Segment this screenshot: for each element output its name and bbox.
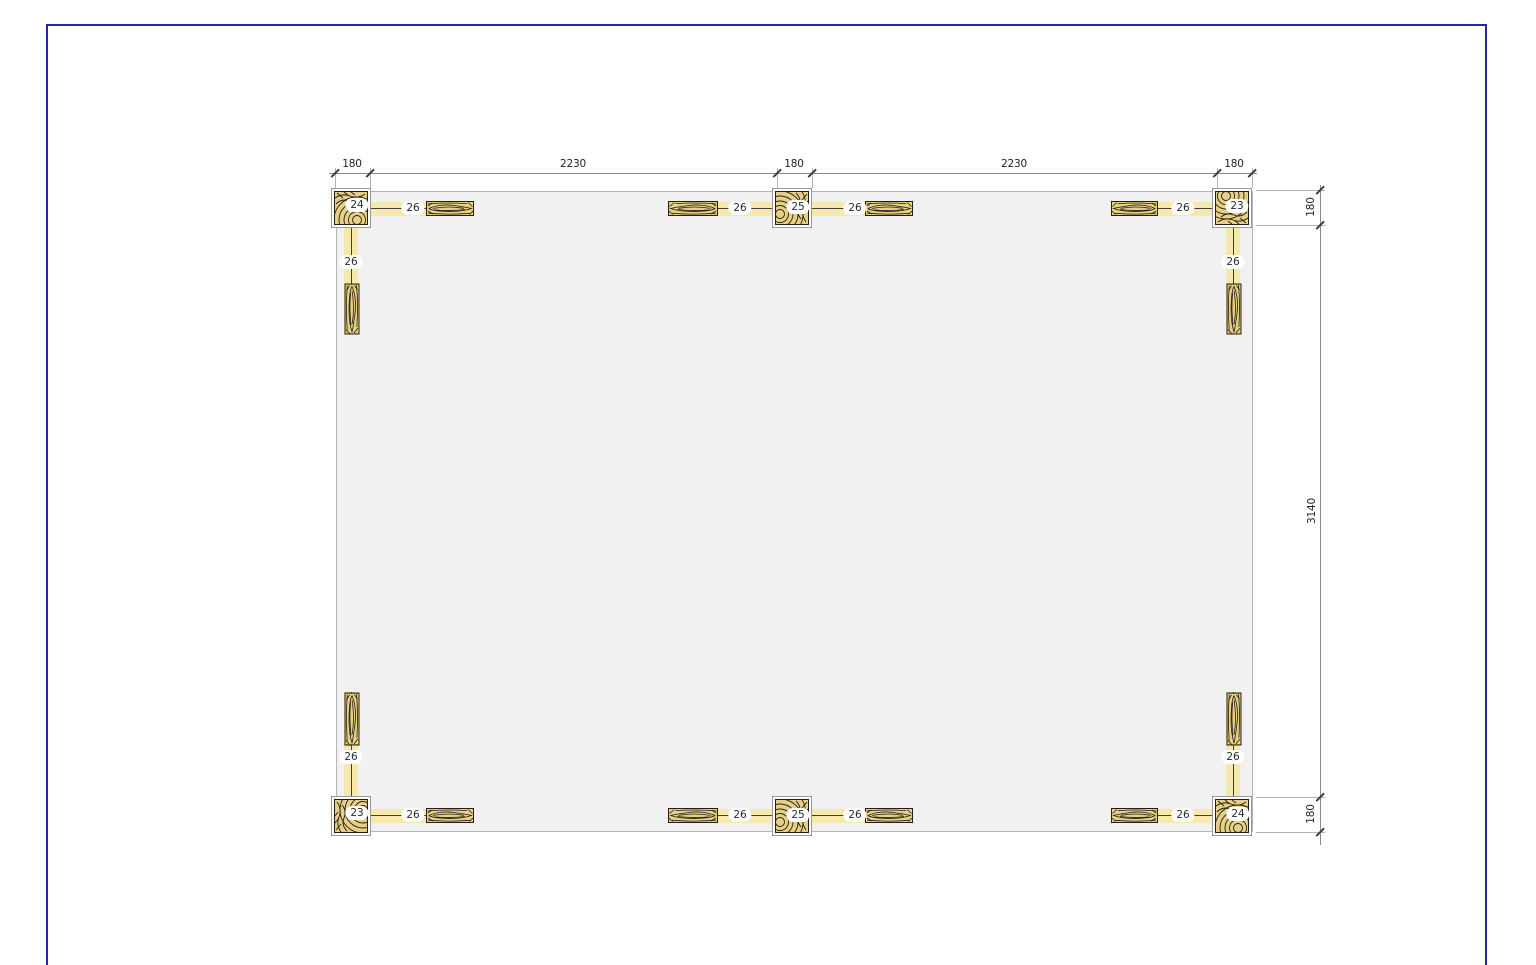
brace-plank-wood (1111, 808, 1158, 823)
floor-slab (336, 191, 1253, 832)
brace-label-badge: 26 (843, 201, 866, 215)
brace-plank-wood (1111, 201, 1158, 216)
brace-label-badge: 26 (401, 201, 424, 215)
post-label-badge: 24 (345, 198, 368, 212)
dim-label-top-4: 180 (1224, 158, 1243, 170)
brace-plank-wood (344, 692, 359, 745)
dim-line-top (329, 173, 1257, 174)
brace-label-badge: 26 (843, 808, 866, 822)
post-label-badge: 25 (786, 200, 809, 214)
brace-plank-wood (668, 201, 718, 216)
post-label-badge: 23 (1225, 199, 1248, 213)
brace-label-badge: 26 (1221, 750, 1244, 764)
brace-label-badge: 26 (728, 201, 751, 215)
brace-label-badge: 26 (401, 808, 424, 822)
dim-line-right (1320, 185, 1321, 845)
dim-label-right-1: 3140 (1306, 498, 1318, 524)
brace-label-badge: 26 (1221, 255, 1244, 269)
brace-plank-wood (668, 808, 718, 823)
witness-line (1256, 190, 1325, 191)
brace-plank-wood (865, 201, 913, 216)
brace-label-badge: 26 (1171, 201, 1194, 215)
dim-label-top-1: 2230 (560, 158, 586, 170)
dim-label-right-0: 180 (1305, 197, 1317, 216)
brace-label-badge: 26 (339, 750, 362, 764)
witness-line (1256, 797, 1325, 798)
page-canvas: 24 25 23 23 25 24 26 26 26 26 26 26 26 2… (0, 0, 1536, 965)
dim-label-right-2: 180 (1305, 804, 1317, 823)
post-label-badge: 24 (1226, 807, 1249, 821)
dim-label-top-0: 180 (342, 158, 361, 170)
witness-line (1256, 225, 1325, 226)
brace-plank-wood (865, 808, 913, 823)
brace-plank-wood (344, 283, 359, 334)
dim-label-top-2: 180 (784, 158, 803, 170)
dim-label-top-3: 2230 (1001, 158, 1027, 170)
post-label-badge: 23 (345, 806, 368, 820)
post-label-badge: 25 (786, 808, 809, 822)
brace-plank-wood (426, 201, 474, 216)
witness-line (1256, 832, 1325, 833)
brace-plank-wood (426, 808, 474, 823)
brace-label-badge: 26 (728, 808, 751, 822)
brace-plank-wood (1226, 283, 1241, 334)
brace-plank-wood (1226, 692, 1241, 745)
brace-label-badge: 26 (339, 255, 362, 269)
brace-label-badge: 26 (1171, 808, 1194, 822)
